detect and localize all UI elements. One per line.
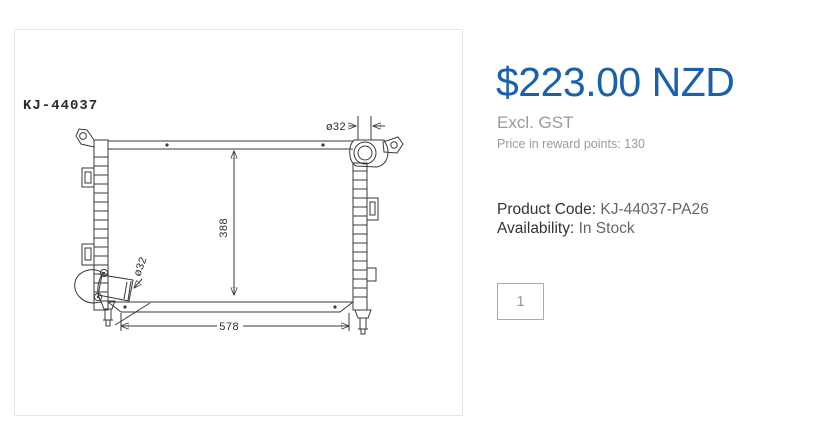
dimension-bottom-port-label: ø32 (132, 256, 150, 279)
product-price: $223.00 NZD (496, 59, 734, 106)
dimension-bottom-port: ø32 (132, 256, 150, 288)
reward-points: Price in reward points: 130 (497, 137, 645, 151)
dimension-height-label: 388 (219, 218, 231, 238)
availability-label: Availability: (497, 220, 574, 237)
filler-neck (350, 116, 403, 167)
product-code-value: KJ-44037-PA26 (600, 201, 708, 218)
availability-value: In Stock (579, 220, 635, 237)
radiator-technical-drawing: KJ-44037 (15, 30, 462, 415)
dimension-width: 578 (121, 313, 349, 334)
part-number-label: KJ-44037 (23, 98, 98, 114)
product-image-panel[interactable]: KJ-44037 (14, 29, 463, 416)
tax-note: Excl. GST (497, 113, 574, 133)
dimension-top-port-label: ø32 (326, 122, 346, 134)
availability-line: Availability: In Stock (497, 220, 635, 238)
product-code-line: Product Code: KJ-44037-PA26 (497, 201, 709, 219)
dimension-height: 388 (219, 151, 234, 295)
quantity-input[interactable] (497, 283, 544, 320)
product-code-label: Product Code: (497, 201, 596, 218)
dimension-width-label: 578 (219, 322, 239, 334)
product-page: KJ-44037 (0, 0, 839, 439)
dimension-top-port: ø32 (326, 122, 385, 134)
